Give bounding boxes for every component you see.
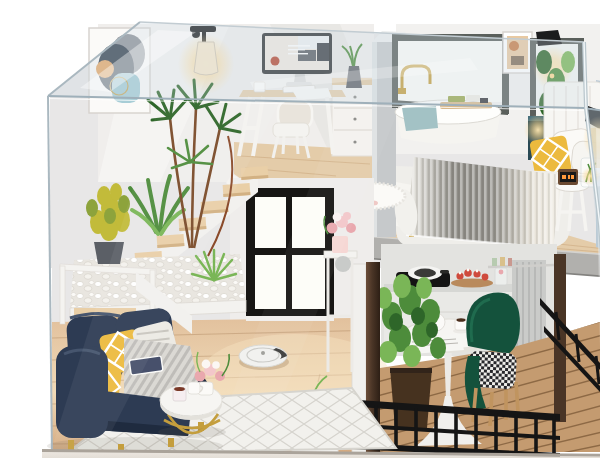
table-cup <box>173 387 186 401</box>
bed <box>392 157 570 251</box>
dollhouse-product-photo <box>40 16 600 458</box>
teal-towel <box>402 106 438 131</box>
scene-canvas <box>40 16 600 458</box>
